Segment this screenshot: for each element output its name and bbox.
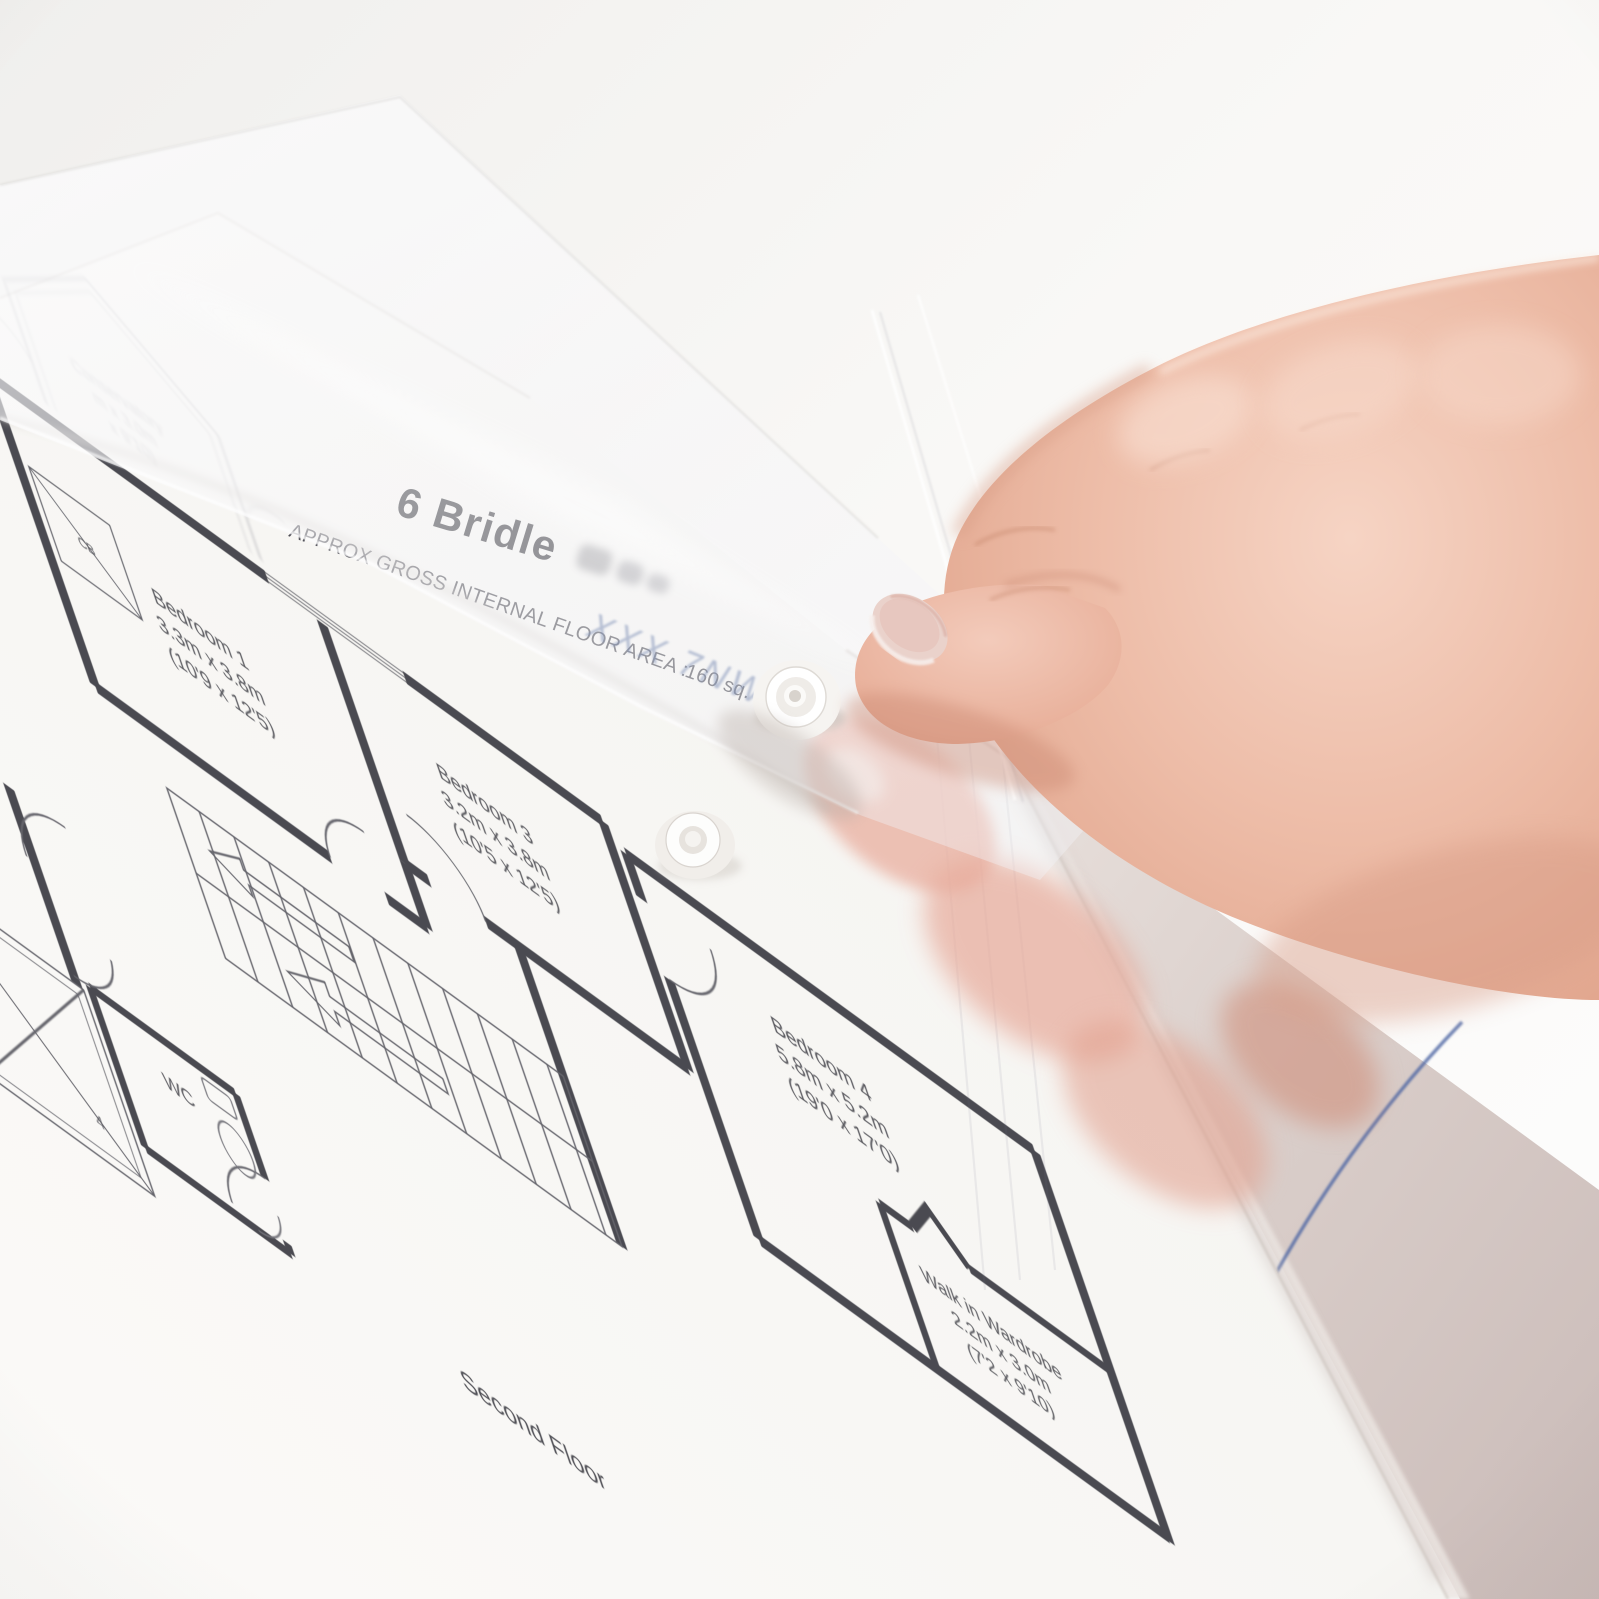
vignette (0, 0, 1599, 1599)
photo-canvas: Conservatory m x 3.0m x 9'10) (0, 0, 1599, 1599)
photo-scene: Conservatory m x 3.0m x 9'10) (0, 0, 1599, 1599)
